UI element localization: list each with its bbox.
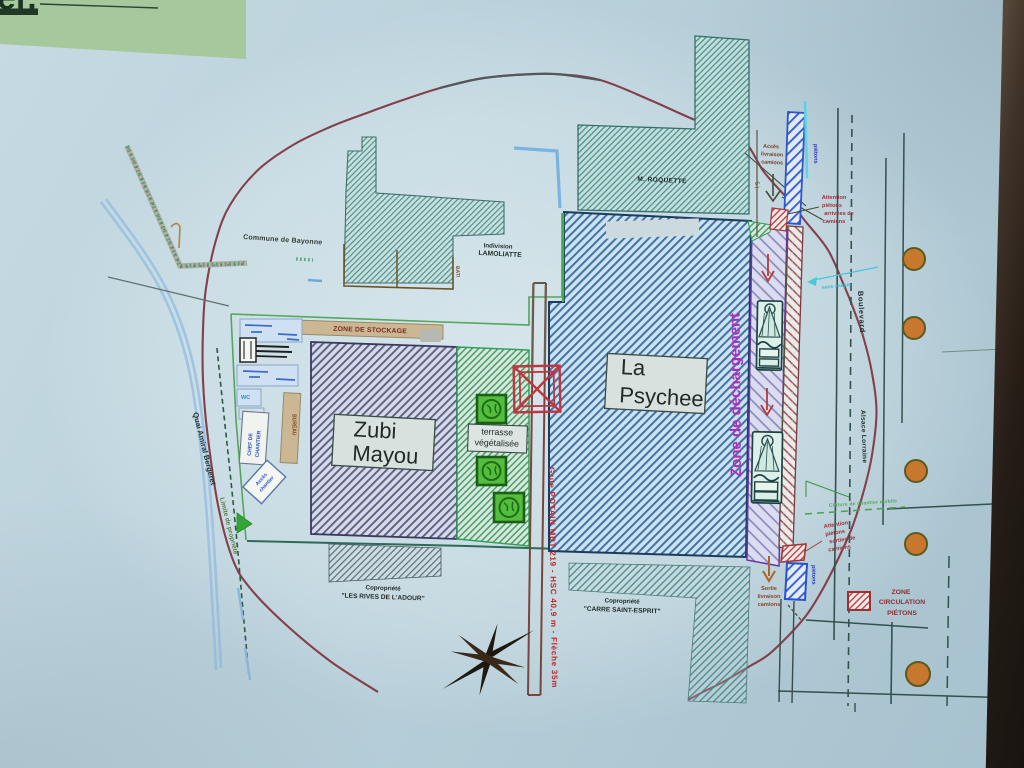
svg-text:camions: camions	[828, 544, 851, 553]
svg-text:végétalisée: végétalisée	[474, 437, 519, 449]
svg-text:livraison: livraison	[757, 594, 781, 600]
svg-text:La: La	[620, 354, 647, 380]
svg-text:Copropriété: Copropriété	[604, 597, 640, 605]
svg-text:piétons: piétons	[812, 144, 818, 164]
svg-text:camions: camions	[823, 219, 846, 225]
svg-text:Zone de déchargement: Zone de déchargement	[727, 313, 745, 477]
svg-text:camions: camions	[758, 602, 781, 608]
svg-text:5 j: 5 j	[753, 181, 760, 188]
svg-text:Copropriété: Copropriété	[365, 584, 401, 592]
svg-text:Sortie: Sortie	[761, 586, 777, 592]
svg-text:Clôture de chantier mobile: Clôture de chantier mobile	[829, 498, 898, 509]
svg-text:Accès: Accès	[763, 144, 779, 151]
svg-text:Mayou: Mayou	[352, 440, 419, 468]
svg-text:camions: camions	[761, 159, 783, 166]
svg-text:PIÉTONS: PIÉTONS	[887, 608, 917, 617]
svg-text:piétons: piétons	[822, 203, 842, 209]
svg-text:Zubi: Zubi	[353, 416, 397, 443]
svg-text:CIRCULATION: CIRCULATION	[879, 599, 925, 606]
svg-text:ZONE: ZONE	[892, 589, 911, 596]
svg-text:Attention: Attention	[822, 195, 847, 201]
svg-text:LAMOLIATTE: LAMOLIATTE	[478, 250, 522, 259]
svg-text:WC: WC	[241, 395, 250, 401]
svg-text:Alsace Lorraine: Alsace Lorraine	[859, 410, 868, 464]
svg-text:"LES RIVES DE L'ADOUR": "LES RIVES DE L'ADOUR"	[341, 593, 424, 603]
svg-text:Grue POTAIN MDT 219 - HSC 40,9: Grue POTAIN MDT 219 - HSC 40,9 m - Flèch…	[547, 467, 559, 688]
svg-text:sorties de: sorties de	[829, 535, 856, 545]
svg-text:Psychee: Psychee	[619, 382, 705, 411]
svg-text:terrasse: terrasse	[481, 426, 513, 437]
svg-text:Boulevard: Boulevard	[856, 291, 867, 333]
svg-text:Commune de Bayonne: Commune de Bayonne	[243, 234, 323, 247]
svg-text:BATI: BATI	[454, 266, 460, 278]
svg-text:livraison: livraison	[761, 151, 783, 158]
svg-text:piétons: piétons	[810, 565, 816, 585]
svg-text:BUREAU: BUREAU	[291, 414, 297, 436]
svg-text:"CARRE SAINT-ESPRIT": "CARRE SAINT-ESPRIT"	[584, 606, 661, 616]
svg-text:Attention: Attention	[823, 520, 849, 530]
svg-text:arrivées de: arrivées de	[824, 211, 854, 217]
